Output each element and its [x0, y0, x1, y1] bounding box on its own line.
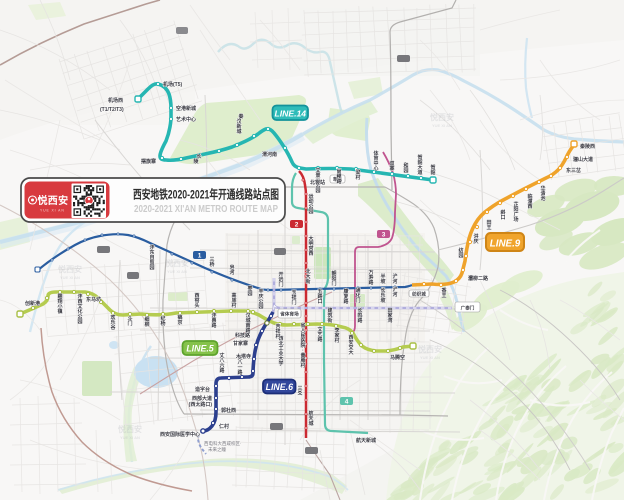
svg-text:华清池: 华清池	[540, 185, 545, 202]
svg-text:镐京: 镐京	[177, 314, 182, 326]
svg-text:LINE.6: LINE.6	[266, 382, 293, 392]
svg-text:皂河: 皂河	[228, 264, 234, 276]
svg-text:灞柳二路: 灞柳二路	[468, 275, 489, 282]
svg-text:3: 3	[382, 231, 386, 238]
svg-text:省体育场: 省体育场	[279, 311, 299, 318]
svg-text:通化门: 通化门	[355, 287, 360, 304]
svg-text:丰庆公园: 丰庆公园	[257, 288, 263, 310]
svg-text:三爻: 三爻	[296, 386, 303, 397]
svg-text:纪杨: 纪杨	[160, 315, 165, 327]
svg-text:丈八六路: 丈八六路	[218, 352, 225, 374]
svg-text:YUE XI AN: YUE XI AN	[40, 209, 65, 213]
svg-text:浐河: 浐河	[391, 273, 397, 285]
svg-text:机场西: 机场西	[107, 97, 123, 104]
svg-text:艺术中心: 艺术中心	[176, 116, 196, 123]
svg-text:悦西安: 悦西安	[38, 194, 69, 207]
svg-text:LINE.5: LINE.5	[186, 344, 213, 354]
svg-text:香王: 香王	[440, 287, 447, 299]
svg-text:2: 2	[295, 221, 299, 228]
svg-text:航天新城: 航天新城	[356, 437, 376, 444]
svg-text:运动公园: 运动公园	[308, 193, 313, 215]
svg-text:悦西安: 悦西安	[58, 264, 82, 274]
svg-text:渭河南: 渭河南	[262, 151, 277, 158]
svg-text:西安交大: 西安交大	[348, 334, 353, 356]
svg-text:2020-2021 XI'AN METRO ROUTE MA: 2020-2021 XI'AN METRO ROUTE MAP	[134, 204, 278, 215]
svg-text:和园: 和园	[402, 162, 408, 174]
svg-text:西安地铁2020-2021年开通线路站点图: 西安地铁2020-2021年开通线路站点图	[133, 188, 279, 202]
svg-text:梁村: 梁村	[354, 169, 361, 181]
svg-text:吉祥村: 吉祥村	[274, 323, 280, 340]
svg-text:空港新城: 空港新城	[176, 105, 196, 112]
svg-text:浐河: 浐河	[391, 286, 397, 298]
svg-text:西窑头: 西窑头	[194, 292, 199, 309]
svg-text:建筑街: 建筑街	[326, 307, 333, 324]
svg-text:玉祥门: 玉祥门	[291, 289, 296, 306]
svg-text:西安国际医学中心: 西安国际医学中心	[160, 431, 200, 438]
svg-text:马腾空: 马腾空	[390, 354, 405, 361]
svg-text:万寿路: 万寿路	[367, 269, 374, 286]
svg-text:悦西安: 悦西安	[118, 424, 142, 434]
svg-text:木塔寺: 木塔寺	[235, 353, 251, 360]
svg-text:开远门: 开远门	[278, 271, 283, 288]
svg-text:贺韶: 贺韶	[429, 164, 435, 176]
svg-text:北客站: 北客站	[310, 179, 325, 186]
svg-text:东三岔: 东三岔	[566, 167, 582, 174]
svg-text:YUE XI AN: YUE XI AN	[60, 275, 80, 280]
svg-text:北大街: 北大街	[304, 268, 310, 285]
svg-text:西电科大西咸校区·: 西电科大西咸校区·	[204, 440, 242, 447]
svg-text:贺韶大道: 贺韶大道	[416, 154, 422, 176]
svg-text:LINE.14: LINE.14	[275, 108, 307, 118]
svg-text:细柳: 细柳	[144, 316, 149, 328]
svg-text:造字台: 造字台	[195, 386, 210, 393]
svg-text:欢乐谷: 欢乐谷	[109, 314, 116, 331]
svg-text:YUE XI AN: YUE XI AN	[432, 123, 452, 128]
svg-text:机场(T5): 机场(T5)	[162, 81, 183, 88]
svg-text:郭杜西: 郭杜西	[221, 407, 236, 414]
svg-text:双寨: 双寨	[388, 160, 394, 172]
svg-text:广泰门: 广泰门	[461, 305, 475, 312]
svg-text:翱翔小镇: 翱翔小镇	[56, 293, 62, 315]
svg-text:秦陵西: 秦陵西	[579, 143, 595, 150]
svg-text:斜口: 斜口	[499, 209, 505, 221]
svg-text:省人民医院·黄雁村: 省人民医院·黄雁村	[299, 322, 306, 369]
svg-text:悦西安: 悦西安	[165, 258, 189, 268]
svg-text:LINE.9: LINE.9	[490, 239, 521, 250]
svg-text:骊山大道: 骊山大道	[572, 156, 593, 163]
svg-text:YUE XI AN: YUE XI AN	[167, 269, 187, 274]
svg-text:纺园: 纺园	[458, 247, 463, 259]
svg-text:悦西安: 悦西安	[430, 112, 454, 122]
svg-text:摆旗寨: 摆旗寨	[141, 158, 156, 165]
svg-text:4: 4	[345, 398, 349, 405]
svg-text:大明宫西: 大明宫西	[308, 235, 313, 257]
svg-text:西部大道: 西部大道	[192, 395, 212, 402]
svg-text:临潼西: 临潼西	[527, 193, 532, 210]
svg-text:朝阳门: 朝阳门	[331, 270, 336, 287]
svg-text:沣东自贸园: 沣东自贸园	[149, 244, 154, 271]
svg-text:甘家寨: 甘家寨	[233, 340, 248, 347]
svg-text:悦西安: 悦西安	[418, 344, 442, 354]
svg-text:未来之瞳: 未来之瞳	[208, 446, 226, 453]
svg-text:斗门: 斗门	[127, 316, 132, 327]
svg-text:枣园: 枣园	[246, 285, 253, 297]
svg-text:芷阳广场: 芷阳广场	[513, 201, 518, 223]
svg-text:(T1/T2/T3): (T1/T2/T3)	[100, 107, 124, 113]
svg-text:科技路: 科技路	[234, 332, 251, 339]
svg-text:仁村: 仁村	[219, 423, 229, 430]
svg-text:高庙村: 高庙村	[230, 292, 236, 309]
svg-text:1: 1	[198, 252, 202, 259]
svg-text:创新港: 创新港	[24, 300, 41, 307]
svg-text:YUE XI AN: YUE XI AN	[420, 355, 440, 360]
svg-text:李家村: 李家村	[333, 327, 340, 344]
svg-text:康复路: 康复路	[342, 288, 349, 305]
svg-text:洪庆: 洪庆	[472, 233, 478, 245]
svg-text:东马坊: 东马坊	[86, 296, 101, 303]
svg-text:(西太路口): (西太路口)	[189, 401, 213, 408]
svg-text:纺织城: 纺织城	[412, 291, 426, 298]
svg-text:YUE XI AN: YUE XI AN	[120, 435, 140, 440]
svg-text:田王: 田王	[486, 219, 491, 231]
